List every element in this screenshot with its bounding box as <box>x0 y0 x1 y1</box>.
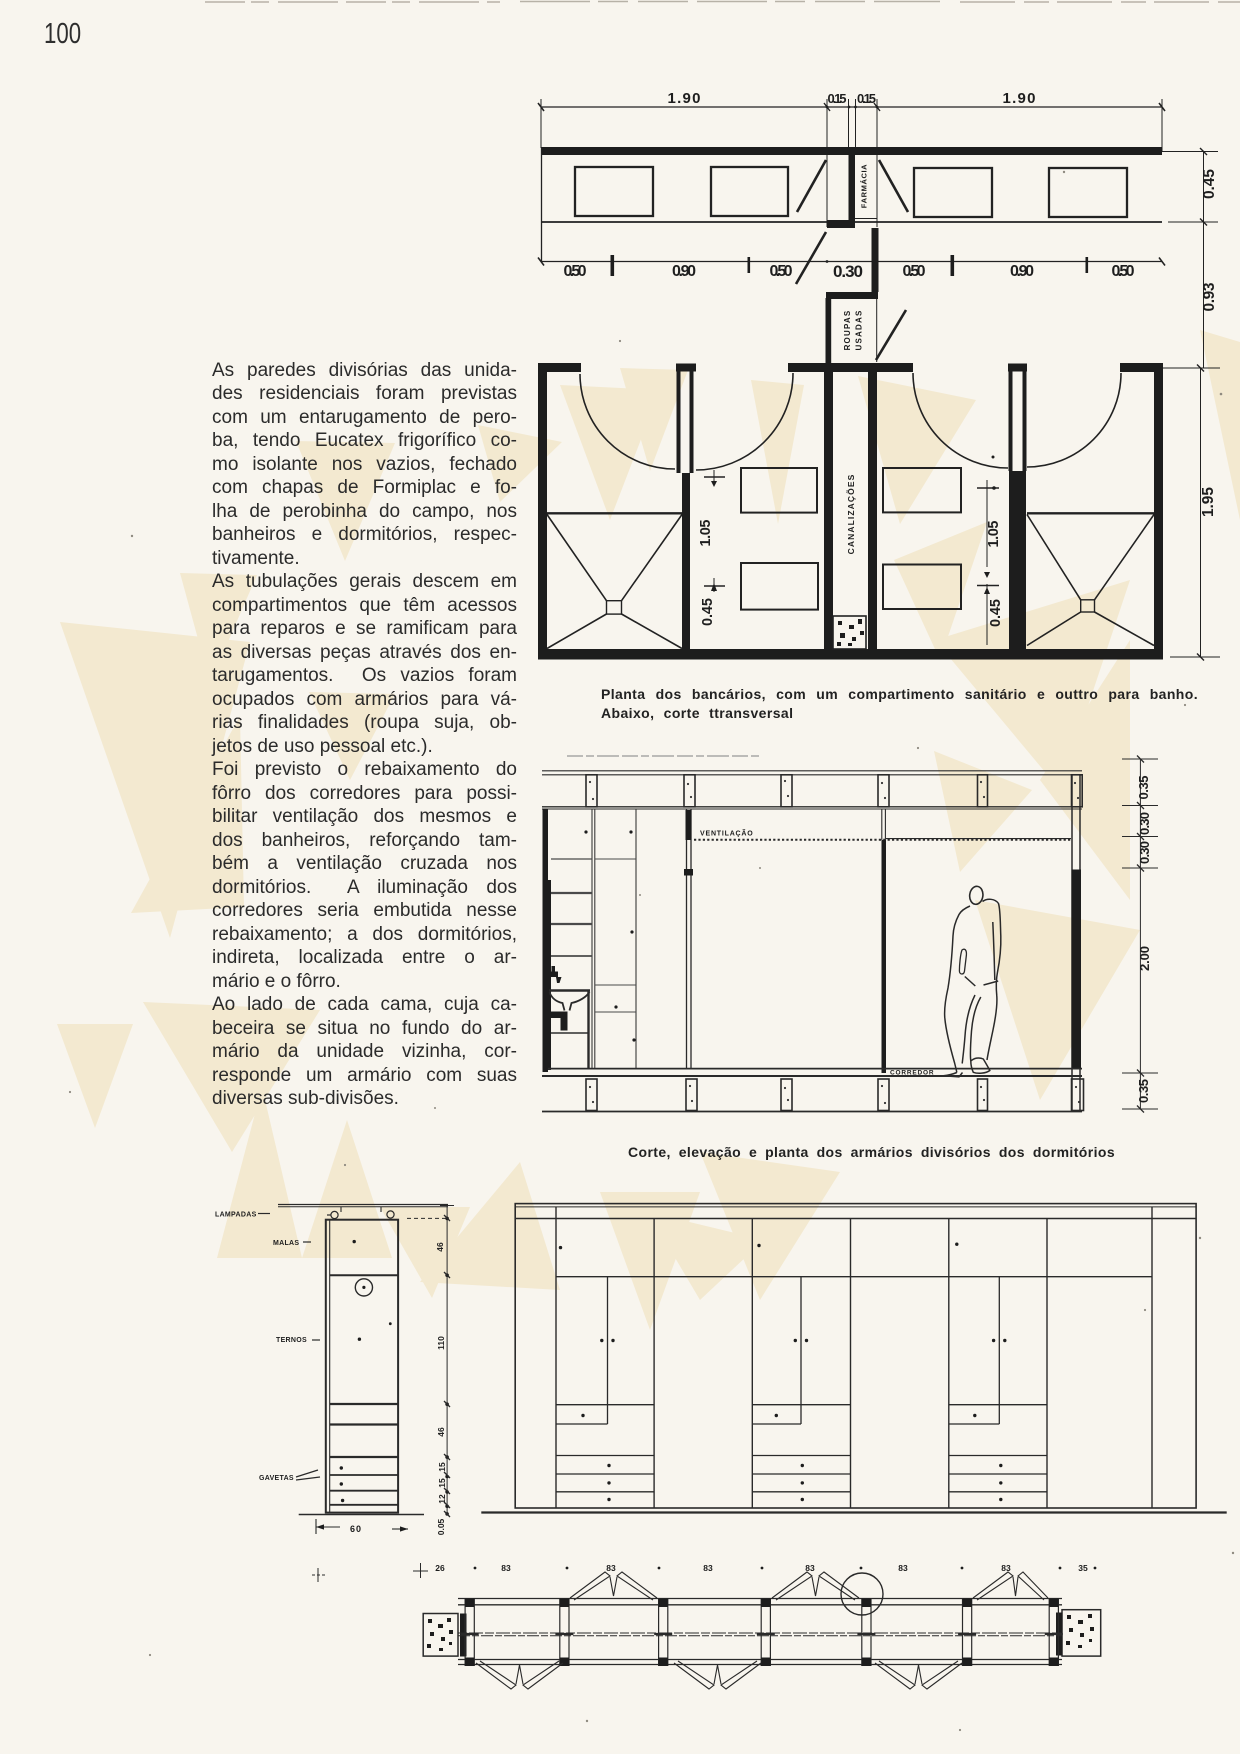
svg-text:0.50: 0.50 <box>903 263 926 280</box>
svg-text:0.35: 0.35 <box>1136 1079 1151 1103</box>
svg-text:0.45: 0.45 <box>700 598 716 626</box>
svg-text:0.05: 0.05 <box>436 1518 446 1535</box>
svg-text:MALAS: MALAS <box>273 1240 299 1247</box>
svg-text:CANALIZAÇÕES: CANALIZAÇÕES <box>846 474 856 555</box>
svg-text:TERNOS: TERNOS <box>276 1337 307 1344</box>
svg-text:ROUPAS: ROUPAS <box>843 310 852 351</box>
svg-text:2.00: 2.00 <box>1137 946 1152 971</box>
svg-text:0.93: 0.93 <box>1201 282 1218 311</box>
svg-text:0.30: 0.30 <box>1137 841 1152 864</box>
svg-text:46: 46 <box>436 1427 446 1437</box>
svg-text:83: 83 <box>805 1563 815 1573</box>
svg-text:GAVETAS: GAVETAS <box>259 1475 294 1482</box>
svg-text:83: 83 <box>1001 1563 1011 1573</box>
svg-text:83: 83 <box>501 1563 511 1573</box>
svg-text:0.35: 0.35 <box>1136 776 1151 800</box>
svg-text:VENTILAÇÃO: VENTILAÇÃO <box>700 829 754 838</box>
svg-text:1.90: 1.90 <box>668 90 701 107</box>
svg-text:46: 46 <box>435 1242 445 1252</box>
svg-text:0.50: 0.50 <box>770 263 793 280</box>
svg-text:0.50: 0.50 <box>564 263 587 280</box>
svg-text:0.90: 0.90 <box>1010 263 1034 280</box>
svg-text:0.50: 0.50 <box>1112 263 1135 280</box>
svg-text:15: 15 <box>437 1478 447 1488</box>
svg-text:USADAS: USADAS <box>855 310 864 351</box>
svg-text:1.95: 1.95 <box>1200 487 1217 517</box>
svg-text:26: 26 <box>435 1563 445 1573</box>
svg-text:1.05: 1.05 <box>698 520 714 547</box>
svg-text:60: 60 <box>350 1524 362 1534</box>
svg-text:0.15: 0.15 <box>857 91 876 106</box>
svg-text:12: 12 <box>437 1494 447 1504</box>
svg-text:0.90: 0.90 <box>672 263 696 280</box>
svg-text:0.45: 0.45 <box>988 599 1004 627</box>
svg-text:0.30: 0.30 <box>833 262 863 281</box>
svg-text:FARMÁCIA: FARMÁCIA <box>860 164 869 208</box>
svg-text:0.45: 0.45 <box>1201 169 1218 199</box>
svg-text:83: 83 <box>898 1563 908 1573</box>
svg-text:LAMPADAS: LAMPADAS <box>215 1212 257 1219</box>
svg-text:110: 110 <box>436 1336 446 1350</box>
svg-text:1.90: 1.90 <box>1003 90 1036 107</box>
svg-text:0.15: 0.15 <box>828 91 847 106</box>
svg-text:83: 83 <box>703 1563 713 1573</box>
svg-text:0.30: 0.30 <box>1137 812 1152 835</box>
svg-text:15: 15 <box>437 1462 447 1472</box>
svg-text:1.05: 1.05 <box>986 521 1002 548</box>
svg-text:35: 35 <box>1078 1563 1088 1573</box>
svg-text:83: 83 <box>606 1563 616 1573</box>
